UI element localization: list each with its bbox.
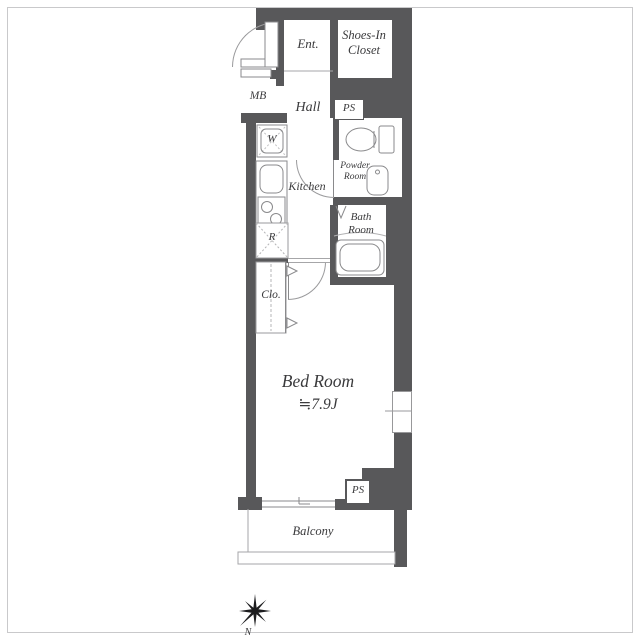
room-label-kitchen: Kitchen [281, 179, 333, 193]
compass-north-label: N [238, 627, 258, 639]
ps-lower-label: PS [347, 484, 369, 497]
room-label-bedroom: Bed Room [258, 371, 378, 392]
room-label-powder-room: Powder Room [334, 161, 376, 183]
wall-powder-bath [333, 197, 403, 205]
bedroom-window [392, 391, 412, 433]
room-label-closet: Clo. [254, 289, 288, 303]
wall-bath-right [386, 205, 412, 285]
wall-entrance-left [276, 20, 284, 86]
room-label-meter-box: MB [240, 90, 276, 104]
room-label-bedroom-size: ≒7.9J [258, 396, 378, 414]
wall-bath-left [330, 205, 338, 285]
pipe-space-upper: PS [334, 99, 364, 120]
room-label-washer: W [257, 133, 287, 146]
room-label-refrigerator: R [256, 231, 288, 244]
room-label-balcony: Balcony [258, 524, 368, 539]
wall-left-main [246, 113, 256, 497]
wall-balcony-right [394, 510, 407, 567]
wall-below-fridge [246, 258, 288, 263]
ps-upper-label: PS [335, 102, 363, 115]
wall-bedroom-right [394, 285, 412, 392]
room-label-entrance: Ent. [284, 36, 332, 51]
room-label-bath-room: Bath Room [338, 211, 384, 237]
room-label-hall: Hall [282, 100, 334, 117]
wall-bottom-left-block [238, 497, 262, 510]
pipe-space-lower: PS [345, 479, 371, 505]
wall-right-mid [402, 118, 412, 205]
wall-top [256, 8, 412, 20]
room-label-shoes-closet: Shoes-In Closet [336, 28, 392, 58]
wall-below-window [394, 433, 412, 468]
floor-plan: PS PS [0, 0, 640, 640]
wall-bath-bottom [330, 277, 412, 285]
wall-powder-left [333, 118, 339, 160]
wall-meterbox-block [270, 70, 277, 79]
